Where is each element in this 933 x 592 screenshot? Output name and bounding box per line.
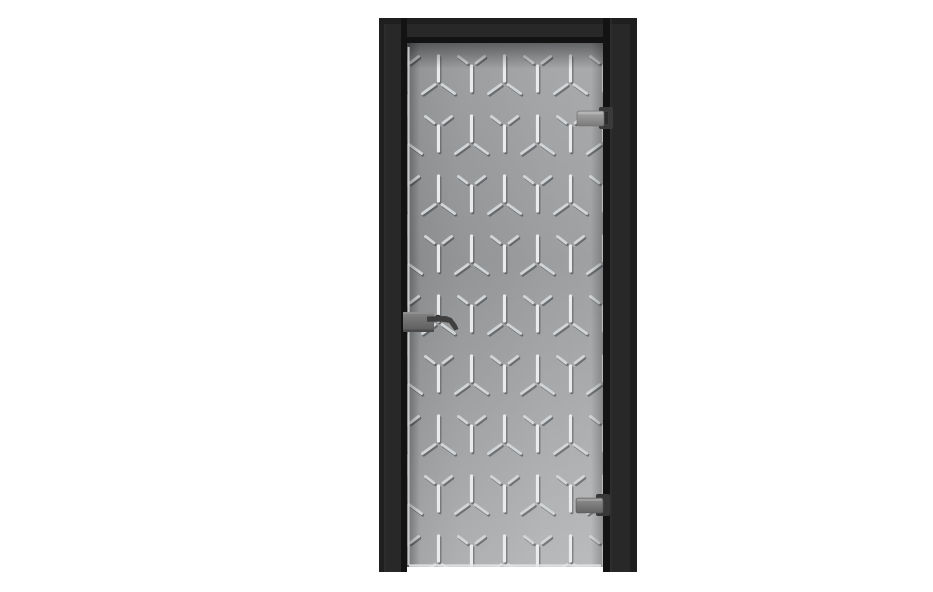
frame-reveal-top (401, 37, 610, 43)
etched-y-pattern (407, 43, 603, 567)
glass-panel (407, 43, 603, 567)
frame-reveal-left (401, 18, 407, 572)
glass-top-shadow (407, 43, 603, 69)
door-image-canvas (40, 16, 933, 576)
door-photo-svg (40, 16, 933, 576)
handle-lock-plate (403, 312, 434, 332)
door-product-photo (40, 16, 933, 576)
frame-reveal-right (603, 18, 610, 572)
